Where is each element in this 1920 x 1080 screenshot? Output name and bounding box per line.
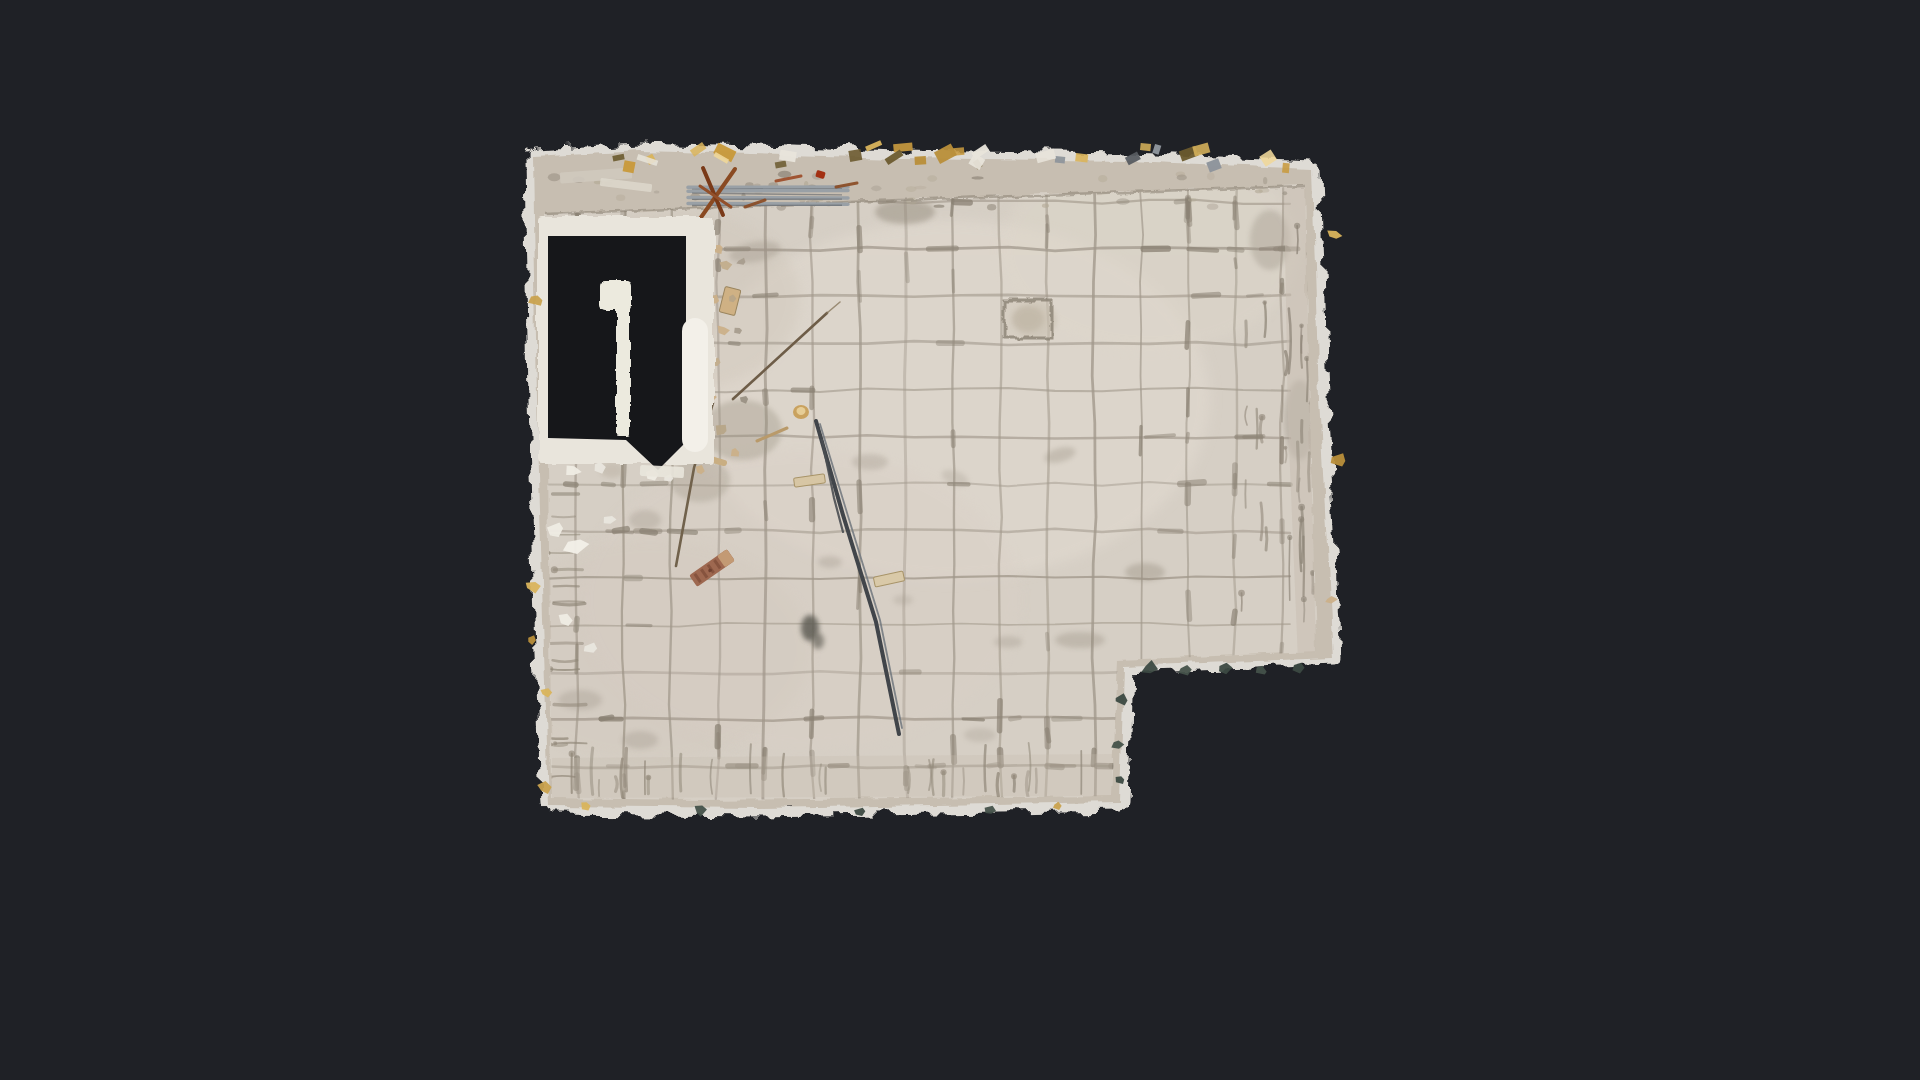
door-sill-fragment: [640, 465, 685, 478]
doorway-opening: [538, 216, 714, 478]
tile-patch-outline: [1004, 300, 1052, 338]
viewer-canvas: [0, 0, 1920, 1080]
door-leaf-edge: [616, 304, 630, 436]
door-jamb: [682, 318, 708, 452]
floorplan-view[interactable]: [0, 0, 1920, 1080]
debris-blob: [797, 407, 806, 415]
